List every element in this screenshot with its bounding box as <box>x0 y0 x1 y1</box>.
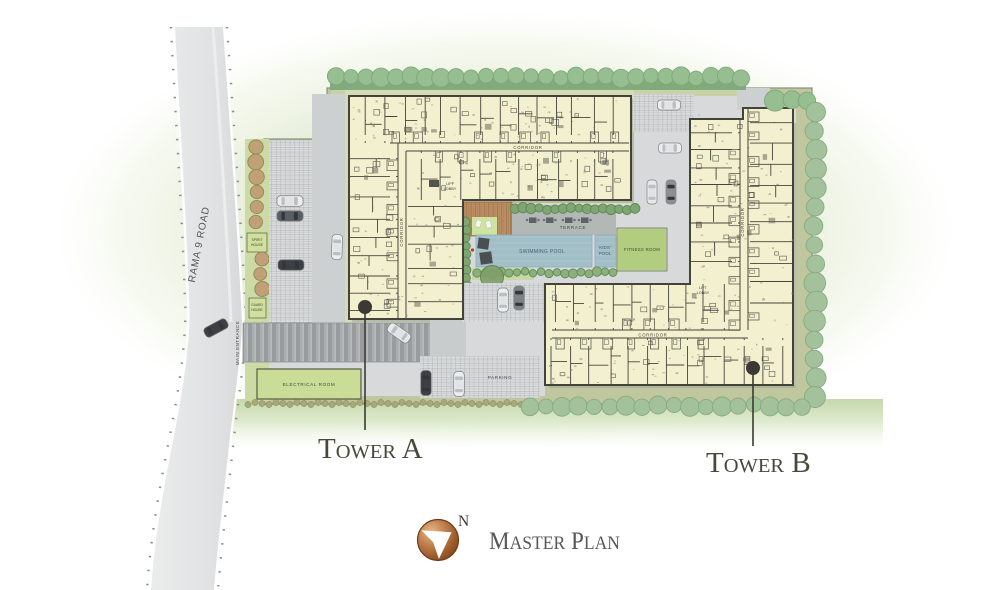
svg-text:PARKING: PARKING <box>488 375 513 380</box>
svg-text:N: N <box>458 513 469 530</box>
svg-text:CORRIDOR: CORRIDOR <box>638 333 667 338</box>
svg-text:TERRACE: TERRACE <box>560 225 587 230</box>
svg-text:LOBBY: LOBBY <box>444 187 457 191</box>
svg-text:HOUSE: HOUSE <box>251 243 264 247</box>
svg-text:SWIMMING POOL: SWIMMING POOL <box>519 249 565 255</box>
svg-text:HOUSE: HOUSE <box>251 308 262 312</box>
svg-text:LOBBY: LOBBY <box>697 291 710 295</box>
svg-text:CORRIDOR: CORRIDOR <box>740 207 745 236</box>
svg-text:POOL: POOL <box>599 251 612 256</box>
svg-text:CORRIDOR: CORRIDOR <box>399 217 404 246</box>
svg-text:MASTER PLAN: MASTER PLAN <box>489 528 620 555</box>
svg-text:CORRIDOR: CORRIDOR <box>513 145 542 150</box>
svg-text:MAIN ENTRANCE: MAIN ENTRANCE <box>235 321 240 366</box>
svg-text:ELECTRICAL ROOM: ELECTRICAL ROOM <box>283 382 336 387</box>
svg-text:KIDS': KIDS' <box>599 245 611 250</box>
svg-text:SPIRIT: SPIRIT <box>252 238 263 242</box>
svg-text:LIFT: LIFT <box>699 286 707 290</box>
svg-text:FITNESS ROOM: FITNESS ROOM <box>624 247 660 252</box>
svg-text:LIFT: LIFT <box>446 182 454 186</box>
svg-text:GUARD: GUARD <box>251 303 263 307</box>
